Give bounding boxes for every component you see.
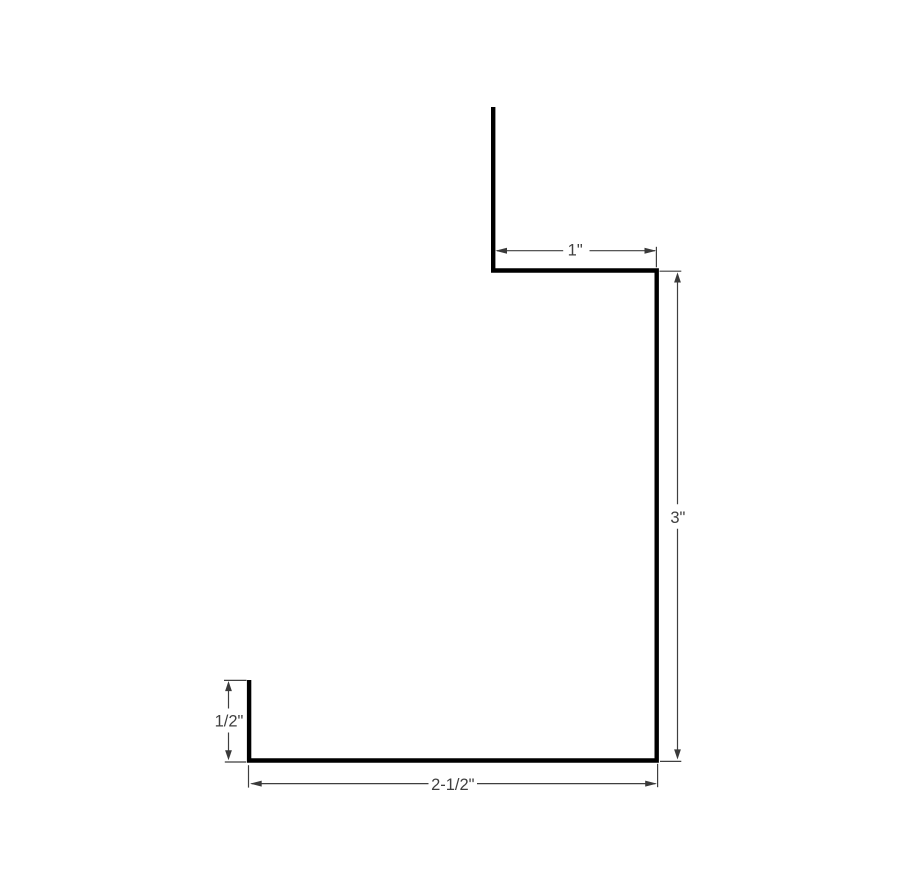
- svg-text:1/2": 1/2": [215, 713, 244, 731]
- svg-text:3": 3": [670, 509, 685, 527]
- svg-text:2-1/2": 2-1/2": [431, 776, 475, 794]
- svg-text:1": 1": [568, 241, 583, 259]
